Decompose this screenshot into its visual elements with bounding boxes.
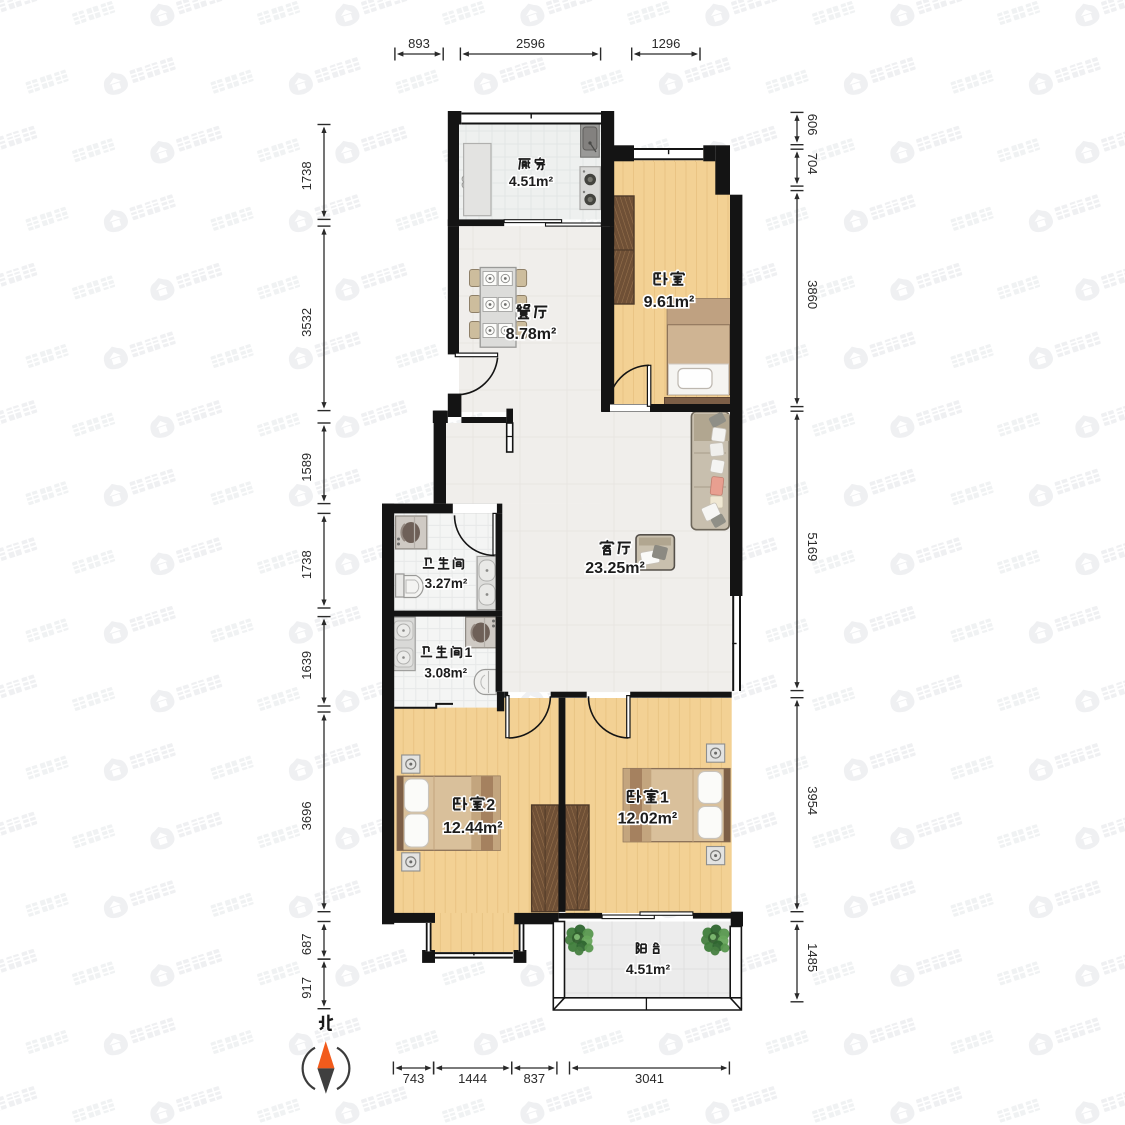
svg-text:1485: 1485	[805, 943, 820, 972]
svg-text:4.51m²: 4.51m²	[509, 173, 554, 189]
svg-text:1296: 1296	[651, 36, 680, 51]
svg-text:4.51m²: 4.51m²	[626, 961, 671, 977]
svg-text:12.44m²: 12.44m²	[443, 820, 503, 837]
svg-text:893: 893	[408, 36, 430, 51]
svg-text:1639: 1639	[299, 651, 314, 680]
svg-text:917: 917	[299, 977, 314, 999]
svg-text:9.61m²: 9.61m²	[644, 294, 695, 311]
svg-text:3860: 3860	[805, 280, 820, 309]
svg-text:3696: 3696	[299, 801, 314, 830]
svg-text:837: 837	[523, 1071, 545, 1086]
svg-text:3.27m²: 3.27m²	[425, 576, 468, 591]
svg-text:3.08m²: 3.08m²	[424, 665, 467, 680]
svg-text:704: 704	[805, 153, 820, 175]
svg-text:1: 1	[465, 644, 473, 660]
svg-text:23.25m²: 23.25m²	[585, 560, 645, 577]
svg-text:8.78m²: 8.78m²	[506, 326, 557, 343]
svg-text:1738: 1738	[299, 550, 314, 579]
svg-text:606: 606	[805, 114, 820, 136]
svg-text:1738: 1738	[299, 161, 314, 190]
svg-text:12.02m²: 12.02m²	[618, 810, 678, 827]
svg-text:2596: 2596	[516, 36, 545, 51]
svg-text:2: 2	[486, 797, 495, 814]
svg-text:687: 687	[299, 933, 314, 955]
svg-text:5169: 5169	[805, 532, 820, 561]
svg-text:3954: 3954	[805, 786, 820, 815]
svg-text:3041: 3041	[635, 1071, 664, 1086]
svg-text:1: 1	[660, 789, 669, 806]
svg-text:1444: 1444	[458, 1071, 487, 1086]
svg-text:743: 743	[403, 1071, 425, 1086]
svg-text:1589: 1589	[299, 453, 314, 482]
svg-text:3532: 3532	[299, 308, 314, 337]
